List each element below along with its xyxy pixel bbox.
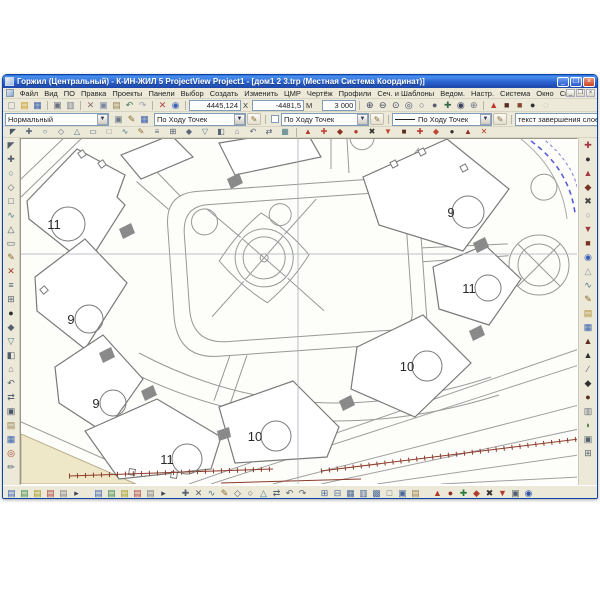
b-wave-icon[interactable]: ∿ [205, 488, 218, 499]
grid-tool-icon[interactable]: ⊞ [165, 127, 181, 138]
minimize-button[interactable]: _ [557, 77, 569, 87]
delete-icon[interactable]: ✕ [156, 100, 169, 111]
menu-projects[interactable]: Проекты [109, 89, 145, 98]
diamond-fill-icon[interactable]: ◆ [4, 320, 18, 334]
coordinate-y-label: М [306, 101, 312, 110]
half-square-icon[interactable]: ◧ [213, 127, 229, 138]
red-up-icon[interactable]: ▲ [460, 127, 476, 138]
home-tool-icon[interactable]: ⌂ [229, 127, 245, 138]
separator [265, 115, 266, 124]
r-diamond-icon[interactable]: ◆ [581, 180, 595, 194]
doc-minimize-button[interactable]: _ [566, 89, 575, 97]
red-cross-icon[interactable]: ✚ [316, 127, 332, 138]
text-style-combo[interactable]: текст завершения слоев ▼ [515, 113, 597, 126]
menu-panels[interactable]: Панели [145, 89, 177, 98]
doc-restore-button[interactable]: ❐ [576, 89, 585, 97]
coordinate-y-field[interactable]: -4481,5 [252, 100, 304, 111]
zoom-next-icon[interactable]: ● [428, 100, 441, 111]
properties-icon[interactable]: ◉ [169, 100, 182, 111]
separator [185, 101, 186, 110]
t-rows-icon[interactable]: ▥ [357, 488, 370, 499]
t-box-icon[interactable]: ▣ [396, 488, 409, 499]
red-plus2-icon[interactable]: ✚ [412, 127, 428, 138]
fill2-icon[interactable]: ▦ [4, 432, 18, 446]
s-plus-icon[interactable]: ✚ [457, 488, 470, 499]
r-box-icon[interactable]: ▣ [581, 432, 595, 446]
line-style-edit-button[interactable]: ✎ [493, 113, 507, 125]
doc-close-button[interactable]: × [586, 89, 595, 97]
blue-boundary-arc [521, 139, 578, 219]
select-tool-icon[interactable]: ◤ [5, 127, 21, 138]
menu-select[interactable]: Выбор [178, 89, 207, 98]
screenshot-stage: Горжил (Центральный) - К-ИН-ЖИЛ 5 Projec… [0, 0, 600, 600]
menu-create[interactable]: Создать [207, 89, 242, 98]
separator [511, 115, 512, 124]
right-tool-rail: ✚●▲◆✖○▼■◉△∿✎▤▦▲▲∕◆●▥◗▣⊞ [578, 138, 597, 485]
building-label: 9 [447, 205, 454, 220]
roundabout [509, 235, 569, 295]
coordinate-x-field[interactable]: 4445,124 [189, 100, 241, 111]
panel-icon[interactable]: ▣ [4, 404, 18, 418]
node-icon[interactable]: ● [526, 100, 539, 111]
s-dot-icon[interactable]: ● [444, 488, 457, 499]
separator [152, 101, 153, 110]
undo-small-icon[interactable]: ↶ [245, 127, 261, 138]
menu-po[interactable]: ПО [61, 89, 78, 98]
styles-toolbar: Нормальный ▼ ▣✎▦ По Ходу Точек ▼ ✎ По Хо… [3, 112, 597, 127]
b-cross-icon[interactable]: ✕ [192, 488, 205, 499]
b-plus-icon[interactable]: ✚ [179, 488, 192, 499]
r-chip2-icon[interactable]: ▦ [581, 320, 595, 334]
b-pen-icon[interactable]: ✎ [218, 488, 231, 499]
cut-icon[interactable]: ✕ [84, 100, 97, 111]
s-flag-icon[interactable]: ▲ [431, 488, 444, 499]
site-plan-canvas[interactable]: 11 9 11 9 9 10 10 11 [21, 139, 578, 484]
coordinate-x-label: X [243, 101, 248, 110]
building-label: 9 [67, 312, 74, 327]
building-11-right [433, 245, 521, 325]
layer-olive-icon[interactable]: ▤ [31, 488, 44, 499]
t-grid2-icon[interactable]: ⊟ [331, 488, 344, 499]
edit-group: ✚✕∿✎◇○△⇄↶↷ [179, 488, 309, 499]
ghost-point-icon[interactable]: ◌ [539, 100, 552, 111]
spline-icon[interactable]: ∿ [4, 208, 18, 222]
pointer-icon[interactable]: ◤ [4, 138, 18, 152]
r-leaf-icon[interactable]: ◗ [581, 418, 595, 432]
dropdown-arrow-icon[interactable]: ▼ [357, 114, 368, 125]
menu-cmr[interactable]: ЦМР [281, 89, 304, 98]
zoom-previous-icon[interactable]: ○ [415, 100, 428, 111]
dark-node-icon[interactable]: ● [444, 127, 460, 138]
menu-items: ФайлВидПОПравкаПроектыПанелиВыборСоздать… [17, 89, 566, 98]
layer-expand-icon[interactable]: ▸ [70, 488, 83, 499]
r-chip1-icon[interactable]: ▤ [581, 306, 595, 320]
point-style-combo-2[interactable]: По Ходу Точек ▼ [281, 113, 369, 126]
triangle-icon[interactable]: △ [4, 222, 18, 236]
maximize-button[interactable]: ❐ [570, 77, 582, 87]
zoom-in-icon[interactable]: ⊕ [363, 100, 376, 111]
fill-tool-icon[interactable]: ▦ [277, 127, 293, 138]
standard-toolbar: ▢▤▦▣▥✕▣▤↶↷✕◉ 4445,124 X -4481,5 М 3 000 … [3, 99, 597, 112]
dropdown-arrow-icon[interactable]: ▼ [480, 114, 491, 125]
r-target-icon[interactable]: ◉ [581, 250, 595, 264]
close-button[interactable]: × [583, 77, 595, 87]
zoom-window-icon[interactable]: ⊙ [389, 100, 402, 111]
layer-style-combo[interactable]: Нормальный ▼ [5, 113, 109, 126]
open-file-icon[interactable]: ▤ [18, 100, 31, 111]
r-fish-icon[interactable]: ◆ [581, 376, 595, 390]
pen2-icon[interactable]: ✏ [4, 460, 18, 474]
rect-tool-icon[interactable]: ▭ [85, 127, 101, 138]
building-9-left [35, 239, 127, 349]
separator [483, 101, 484, 110]
r-cross-icon[interactable]: ✖ [581, 194, 595, 208]
menu-sections[interactable]: Сеч. и Шаблоны [374, 89, 437, 98]
building-9-top-right [363, 139, 509, 251]
target-icon[interactable]: ◎ [4, 446, 18, 460]
point-tool-icon[interactable]: ✚ [21, 127, 37, 138]
dark-square-icon[interactable]: ■ [396, 127, 412, 138]
main-area: ◤✚○◇□∿△▭✎✕≡⊞●◆▽◧⌂↶⇄▣▤▦◎✏ [3, 138, 597, 485]
layers-icon[interactable]: ≡ [4, 278, 18, 292]
b-tri-icon[interactable]: △ [257, 488, 270, 499]
style-new-icon[interactable]: ▣ [112, 114, 125, 125]
r-dot-icon[interactable]: ● [581, 152, 595, 166]
t-grid1-icon[interactable]: ⊞ [318, 488, 331, 499]
s-target-icon[interactable]: ◉ [522, 488, 535, 499]
drawing-canvas[interactable]: 11 9 11 9 9 10 10 11 [20, 138, 578, 485]
new-file-icon[interactable]: ▢ [5, 100, 18, 111]
dropdown-arrow-icon[interactable]: ▼ [97, 114, 108, 125]
table-group: ⊞⊟▦▥▩□▣▤ [318, 488, 422, 499]
b-circle-icon[interactable]: ○ [244, 488, 257, 499]
diamond-icon[interactable]: ◇ [4, 180, 18, 194]
r-plus-icon[interactable]: ✚ [581, 138, 595, 152]
red-flag-icon[interactable]: ▲ [300, 127, 316, 138]
red-diamond-icon[interactable]: ◆ [332, 127, 348, 138]
b-swap-icon[interactable]: ⇄ [270, 488, 283, 499]
sketch-tool-icon[interactable]: ✎ [133, 127, 149, 138]
left-tool-rail: ◤✚○◇□∿△▭✎✕≡⊞●◆▽◧⌂↶⇄▣▤▦◎✏ [3, 138, 20, 485]
tri-down-icon[interactable]: ▽ [4, 334, 18, 348]
home-icon[interactable]: ⌂ [4, 362, 18, 376]
r-square-icon[interactable]: ■ [581, 236, 595, 250]
redo-icon[interactable]: ↷ [136, 100, 149, 111]
building-top-mid [219, 139, 321, 175]
print-icon[interactable]: ▣ [51, 100, 64, 111]
cancel-obj-icon[interactable]: ✕ [476, 127, 492, 138]
window-title: Горжил (Центральный) - К-ИН-ЖИЛ 5 Projec… [17, 77, 557, 86]
r-wave-icon[interactable]: ∿ [581, 278, 595, 292]
layer-green-icon[interactable]: ▤ [18, 488, 31, 499]
spline-tool-icon[interactable]: ∿ [117, 127, 133, 138]
r-slash-icon[interactable]: ∕ [581, 362, 595, 376]
layer2-gray-icon[interactable]: ▤ [144, 488, 157, 499]
circle-tool-icon[interactable]: ○ [37, 127, 53, 138]
half-icon[interactable]: ◧ [4, 348, 18, 362]
swap-tool-icon[interactable]: ⇄ [261, 127, 277, 138]
zoom-out-icon[interactable]: ⊖ [376, 100, 389, 111]
crosshair-icon[interactable]: ✚ [4, 152, 18, 166]
s-cross-icon[interactable]: ✖ [483, 488, 496, 499]
menu-settings[interactable]: Настр. [468, 89, 497, 98]
menu-edit[interactable]: Правка [78, 89, 109, 98]
marker-dark-icon[interactable]: ■ [500, 100, 513, 111]
zoom-realtime-icon[interactable]: ◉ [454, 100, 467, 111]
red-down-icon[interactable]: ▼ [380, 127, 396, 138]
layer2-green-icon[interactable]: ▤ [105, 488, 118, 499]
menu-file[interactable]: Файл [17, 89, 41, 98]
layer2-red-icon[interactable]: ▤ [131, 488, 144, 499]
r-blob-icon[interactable]: ● [581, 390, 595, 404]
s-down-icon[interactable]: ▼ [496, 488, 509, 499]
building-label: 10 [248, 429, 262, 444]
rectangle-icon[interactable]: ▭ [4, 236, 18, 250]
building-label: 10 [400, 359, 414, 374]
paste-icon[interactable]: ▤ [110, 100, 123, 111]
menu-window[interactable]: Окно [533, 89, 556, 98]
grid-icon[interactable]: ⊞ [4, 292, 18, 306]
building-label: 9 [92, 396, 99, 411]
separator [296, 128, 297, 137]
delete-obj-icon[interactable]: ✖ [364, 127, 380, 138]
erase-icon[interactable]: ✕ [4, 264, 18, 278]
menu-system[interactable]: Система [497, 89, 533, 98]
t-empty-icon[interactable]: □ [383, 488, 396, 499]
layers-tool-icon[interactable]: ≡ [149, 127, 165, 138]
line-style-preview [395, 119, 415, 120]
r-grid-icon[interactable]: ⊞ [581, 446, 595, 460]
undo-icon[interactable]: ↶ [123, 100, 136, 111]
red-diamond2-icon[interactable]: ◆ [428, 127, 444, 138]
pan-icon[interactable]: ✚ [441, 100, 454, 111]
dropdown-arrow-icon[interactable]: ▼ [234, 114, 245, 125]
point-style-edit-button[interactable]: ✎ [247, 113, 261, 125]
zoom-extents-icon[interactable]: ◎ [402, 100, 415, 111]
building-label: 11 [47, 217, 61, 232]
drawing-toolbar: ◤✚○◇△▭□∿✎≡⊞◆▽◧⌂↶⇄▦▲✚◆●✖▼■✚◆●▲✕ [3, 127, 597, 138]
undo2-icon[interactable]: ↶ [4, 376, 18, 390]
r-circle-icon[interactable]: ○ [581, 208, 595, 222]
t-fill-icon[interactable]: ▦ [344, 488, 357, 499]
t-sheet-icon[interactable]: ▤ [409, 488, 422, 499]
building-top-small [121, 139, 193, 179]
sheet-icon[interactable]: ▤ [4, 418, 18, 432]
print-preview-icon[interactable]: ▥ [64, 100, 77, 111]
r-tri-icon[interactable]: ▲ [581, 166, 595, 180]
menu-view[interactable]: Вид [41, 89, 61, 98]
diamond-tool-icon[interactable]: ◆ [181, 127, 197, 138]
b-diamond-icon[interactable]: ◇ [231, 488, 244, 499]
square-tool-icon[interactable]: □ [101, 127, 117, 138]
layer-red-icon[interactable]: ▤ [44, 488, 57, 499]
b-redo-icon[interactable]: ↷ [296, 488, 309, 499]
style-edit-icon[interactable]: ✎ [125, 114, 138, 125]
point-mode-checkbox[interactable] [271, 115, 279, 123]
layer2-olive-icon[interactable]: ▤ [118, 488, 131, 499]
s-diamond-icon[interactable]: ◆ [470, 488, 483, 499]
layer-gray-icon[interactable]: ▤ [57, 488, 70, 499]
style-save-icon[interactable]: ▦ [138, 114, 151, 125]
b-undo-icon[interactable]: ↶ [283, 488, 296, 499]
layer2-expand-icon[interactable]: ▸ [157, 488, 170, 499]
menu-drawing[interactable]: Чертёж [304, 89, 336, 98]
separator [80, 101, 81, 110]
menu-help[interactable]: Справка [557, 89, 566, 98]
point-style-icon[interactable]: ▲ [487, 100, 500, 111]
fit-view-icon[interactable]: ⊕ [467, 100, 480, 111]
swap-icon[interactable]: ⇄ [4, 390, 18, 404]
marker-brown-icon[interactable]: ■ [513, 100, 526, 111]
layer-group-1: ▤▤▤▤▤▸ [5, 488, 83, 499]
copy-icon[interactable]: ▣ [97, 100, 110, 111]
circle-icon[interactable]: ○ [4, 166, 18, 180]
triangle-tool-icon[interactable]: △ [69, 127, 85, 138]
separator [47, 101, 48, 110]
menu-modify[interactable]: Изменить [241, 89, 281, 98]
menu-profiles[interactable]: Профили [336, 89, 375, 98]
layer-blue-icon[interactable]: ▤ [5, 488, 18, 499]
r-flag2-icon[interactable]: ▲ [581, 348, 595, 362]
app-icon [5, 77, 14, 86]
title-bar[interactable]: Горжил (Центральный) - К-ИН-ЖИЛ 5 Projec… [3, 75, 597, 88]
s-panel-icon[interactable]: ▣ [509, 488, 522, 499]
scale-field[interactable]: 3 000 [322, 100, 356, 111]
point-style-combo[interactable]: По Ходу Точек ▼ [154, 113, 246, 126]
node-dark-icon[interactable]: ● [4, 306, 18, 320]
layer2-blue-icon[interactable]: ▤ [92, 488, 105, 499]
square-icon[interactable]: □ [4, 194, 18, 208]
separator [359, 101, 360, 110]
t-hatch-icon[interactable]: ▩ [370, 488, 383, 499]
menu-bar: ФайлВидПОПравкаПроектыПанелиВыборСоздать… [3, 88, 597, 99]
r-tri2-icon[interactable]: △ [581, 264, 595, 278]
document-icon [6, 89, 14, 97]
down-tool-icon[interactable]: ▽ [197, 127, 213, 138]
separator [388, 115, 389, 124]
polygon-tool-icon[interactable]: ◇ [53, 127, 69, 138]
building-label: 11 [462, 281, 476, 296]
point-style-2-edit-button[interactable]: ✎ [370, 113, 384, 125]
save-icon[interactable]: ▦ [31, 100, 44, 111]
r-chip3-icon[interactable]: ▥ [581, 404, 595, 418]
menu-reports[interactable]: Ведом. [437, 89, 468, 98]
building-label: 11 [160, 452, 174, 467]
layer-group-2: ▤▤▤▤▤▸ [92, 488, 170, 499]
r-pen-icon[interactable]: ✎ [581, 292, 595, 306]
status-group: ▲●✚◆✖▼▣◉ [431, 488, 535, 499]
red-node-icon[interactable]: ● [348, 127, 364, 138]
bottom-toolbar: ▤▤▤▤▤▸ ▤▤▤▤▤▸ ✚✕∿✎◇○△⇄↶↷ ⊞⊟▦▥▩□▣▤ ▲●✚◆✖▼… [3, 485, 597, 499]
pencil-icon[interactable]: ✎ [4, 250, 18, 264]
application-window: Горжил (Центральный) - К-ИН-ЖИЛ 5 Projec… [2, 74, 598, 499]
r-flag-icon[interactable]: ▲ [581, 334, 595, 348]
r-down-icon[interactable]: ▼ [581, 222, 595, 236]
buildings [27, 139, 521, 479]
line-style-combo[interactable]: По Ходу Точек ▼ [392, 113, 492, 126]
